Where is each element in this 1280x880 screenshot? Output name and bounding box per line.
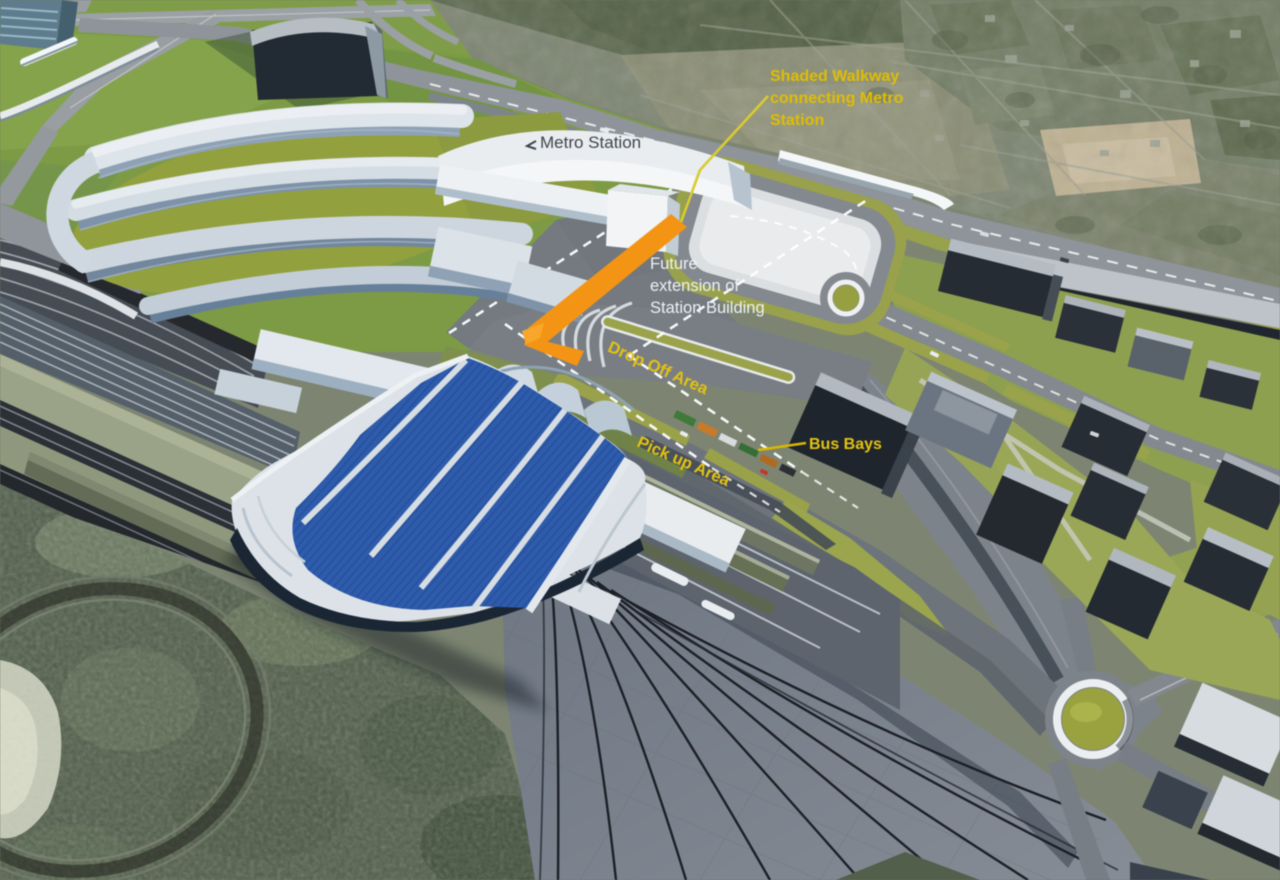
svg-text:connecting Metro: connecting Metro <box>770 90 904 107</box>
svg-text:Future: Future <box>650 255 698 273</box>
svg-text:Shaded Walkway: Shaded Walkway <box>770 68 899 85</box>
svg-text:Station Building: Station Building <box>650 299 765 317</box>
svg-text:Station: Station <box>770 112 824 129</box>
svg-text:Bus Bays: Bus Bays <box>809 436 882 453</box>
svg-text:Metro Station: Metro Station <box>540 133 641 152</box>
svg-text:extension of: extension of <box>650 277 739 295</box>
